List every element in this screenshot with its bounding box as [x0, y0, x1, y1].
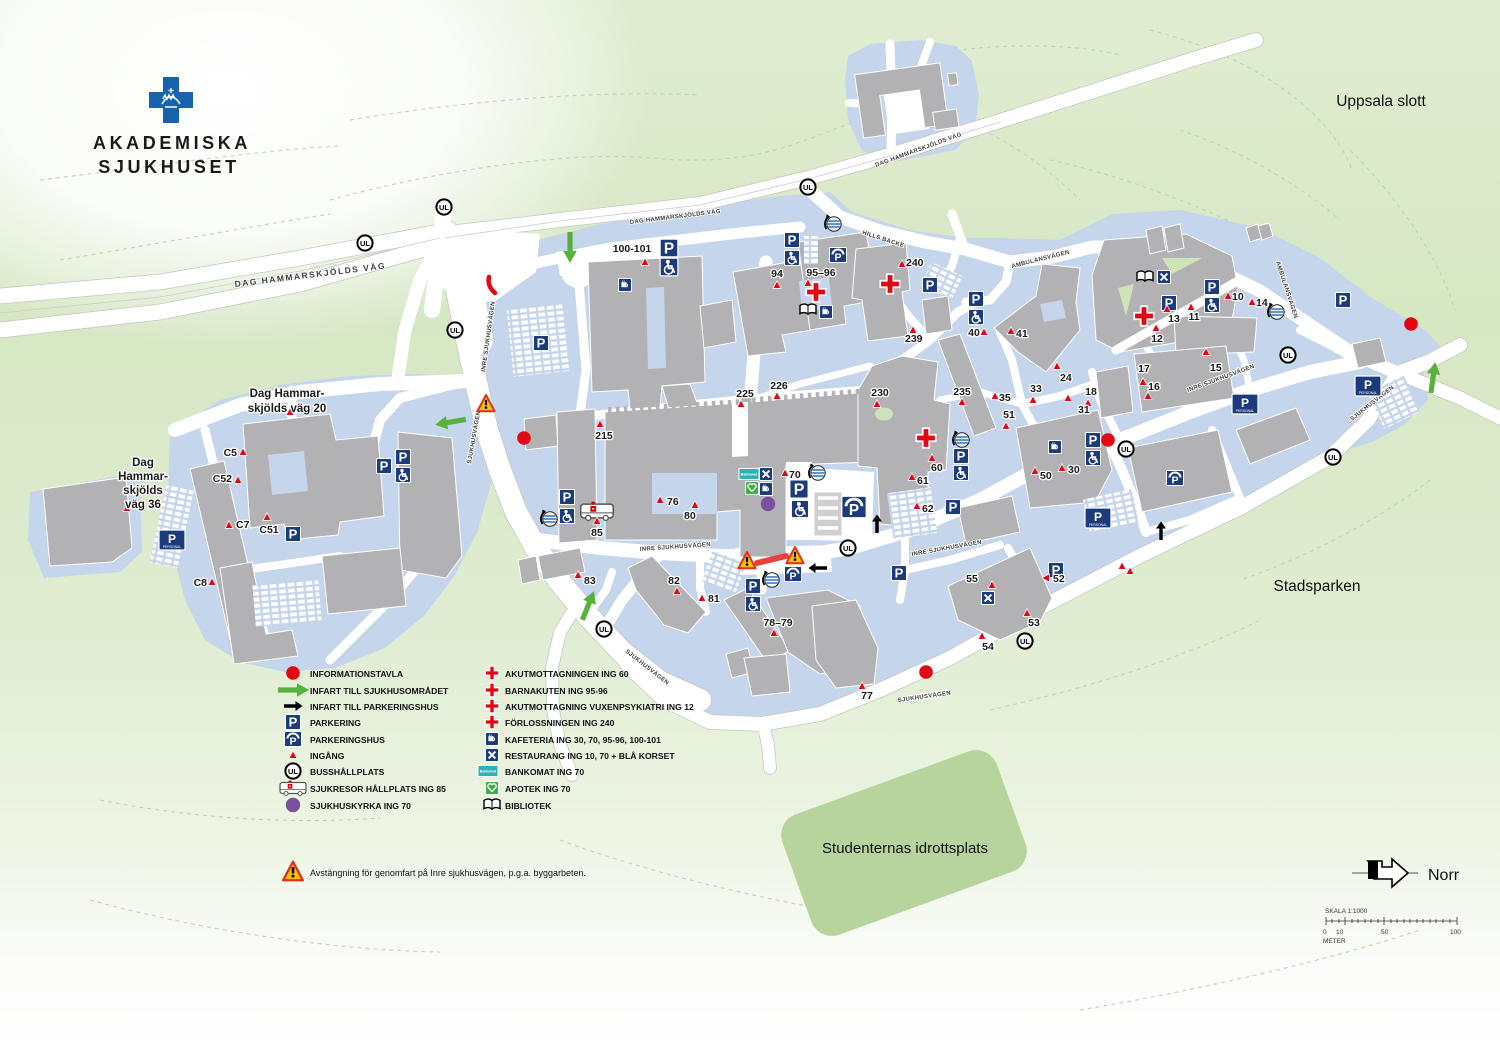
svg-text:väg 36: väg 36 [125, 499, 161, 511]
svg-text:C51: C51 [259, 524, 278, 536]
svg-text:51: 51 [1003, 409, 1015, 421]
svg-text:AKUTMOTTAGNING VUXENPSYKIATRI: AKUTMOTTAGNING VUXENPSYKIATRI ING 12 [505, 702, 694, 712]
svg-text:60: 60 [931, 462, 943, 474]
svg-text:215: 215 [595, 430, 613, 442]
svg-text:230: 230 [871, 387, 889, 399]
svg-text:C7: C7 [236, 519, 250, 531]
svg-text:Avstängning för genomfart på I: Avstängning för genomfart på Inre sjukhu… [310, 868, 586, 878]
svg-text:77: 77 [861, 690, 873, 702]
svg-text:Dag: Dag [132, 457, 154, 469]
svg-text:31: 31 [1078, 404, 1090, 416]
svg-text:94: 94 [771, 268, 783, 280]
svg-text:24: 24 [1060, 372, 1072, 384]
svg-text:Studenternas idrottsplats: Studenternas idrottsplats [822, 840, 988, 857]
svg-text:12: 12 [1151, 333, 1163, 345]
svg-text:METER: METER [1323, 938, 1346, 945]
svg-text:100: 100 [1450, 929, 1461, 936]
svg-text:95–96: 95–96 [806, 267, 835, 279]
svg-text:SJUKHUSKYRKA ING 70: SJUKHUSKYRKA ING 70 [310, 801, 411, 811]
svg-text:13: 13 [1168, 313, 1180, 325]
svg-text:PARKERINGSHUS: PARKERINGSHUS [310, 735, 385, 745]
svg-text:skjölds väg 20: skjölds väg 20 [248, 403, 327, 415]
svg-text:BARNAKUTEN ING 95-96: BARNAKUTEN ING 95-96 [505, 686, 608, 696]
svg-text:INGÅNG: INGÅNG [310, 751, 345, 761]
svg-text:18: 18 [1085, 386, 1097, 398]
svg-text:17: 17 [1138, 363, 1150, 375]
svg-text:30: 30 [1068, 464, 1080, 476]
svg-text:SKALA 1:1000: SKALA 1:1000 [1325, 908, 1368, 915]
svg-text:81: 81 [708, 593, 720, 605]
svg-text:53: 53 [1028, 617, 1040, 629]
svg-text:16: 16 [1148, 381, 1160, 393]
svg-text:0: 0 [1323, 929, 1327, 936]
svg-text:50: 50 [1040, 470, 1052, 482]
svg-text:50: 50 [1381, 929, 1389, 936]
svg-text:C52: C52 [213, 473, 232, 485]
svg-text:AKUTMOTTAGNINGEN ING 60: AKUTMOTTAGNINGEN ING 60 [505, 669, 629, 679]
svg-text:55: 55 [966, 573, 978, 585]
svg-text:78–79: 78–79 [763, 617, 792, 629]
svg-text:BIBLIOTEK: BIBLIOTEK [505, 801, 552, 811]
svg-text:35: 35 [999, 392, 1011, 404]
svg-text:INFORMATIONSTAVLA: INFORMATIONSTAVLA [310, 669, 403, 679]
svg-text:240: 240 [906, 257, 924, 269]
svg-text:PARKERING: PARKERING [310, 718, 361, 728]
svg-text:41: 41 [1016, 328, 1028, 340]
svg-text:40: 40 [968, 327, 980, 339]
svg-text:61: 61 [917, 475, 929, 487]
svg-text:FÖRLOSSNINGEN ING 240: FÖRLOSSNINGEN ING 240 [505, 718, 615, 728]
svg-text:SJUKRESOR HÅLLPLATS ING 85: SJUKRESOR HÅLLPLATS ING 85 [310, 784, 446, 794]
svg-text:226: 226 [770, 380, 788, 392]
svg-text:RESTAURANG ING 10, 70 + BLÅ KO: RESTAURANG ING 10, 70 + BLÅ KORSET [505, 751, 675, 761]
svg-text:11: 11 [1188, 311, 1199, 323]
svg-text:C8: C8 [194, 577, 208, 589]
svg-text:83: 83 [584, 575, 596, 587]
svg-text:Dag Hammar-: Dag Hammar- [250, 388, 325, 400]
svg-text:70: 70 [789, 469, 801, 481]
svg-text:100-101: 100-101 [613, 243, 652, 255]
svg-text:INFART TILL SJUKHUSOMRÅDET: INFART TILL SJUKHUSOMRÅDET [310, 686, 449, 696]
svg-text:15: 15 [1210, 362, 1222, 374]
svg-text:82: 82 [668, 575, 680, 587]
svg-text:skjölds: skjölds [123, 485, 163, 497]
svg-text:Stadsparken: Stadsparken [1273, 578, 1360, 595]
svg-text:85: 85 [591, 527, 603, 539]
svg-text:62: 62 [922, 503, 934, 515]
svg-text:APOTEK ING 70: APOTEK ING 70 [505, 784, 571, 794]
svg-text:10: 10 [1232, 291, 1244, 303]
svg-text:C5: C5 [224, 447, 238, 459]
svg-text:INFART TILL PARKERINGSHUS: INFART TILL PARKERINGSHUS [310, 702, 439, 712]
svg-text:80: 80 [684, 510, 696, 522]
svg-text:225: 225 [736, 388, 754, 400]
svg-text:Uppsala slott: Uppsala slott [1336, 93, 1426, 110]
svg-text:76: 76 [667, 496, 679, 508]
svg-text:Norr: Norr [1428, 867, 1460, 884]
svg-text:AKADEMISKA: AKADEMISKA [93, 133, 251, 153]
svg-text:10: 10 [1336, 929, 1344, 936]
svg-text:SJUKHUSET: SJUKHUSET [98, 157, 239, 177]
svg-text:Hammar-: Hammar- [118, 471, 168, 483]
svg-text:14: 14 [1256, 297, 1268, 309]
svg-text:BANKOMAT ING 70: BANKOMAT ING 70 [505, 767, 584, 777]
svg-text:54: 54 [982, 641, 994, 653]
svg-text:33: 33 [1030, 383, 1042, 395]
svg-text:BUSSHÅLLPLATS: BUSSHÅLLPLATS [310, 767, 385, 777]
svg-text:239: 239 [905, 333, 923, 345]
svg-text:KAFETERIA ING 30, 70, 95-96, 1: KAFETERIA ING 30, 70, 95-96, 100-101 [505, 735, 661, 745]
svg-text:235: 235 [953, 386, 971, 398]
svg-text:52: 52 [1053, 573, 1065, 585]
